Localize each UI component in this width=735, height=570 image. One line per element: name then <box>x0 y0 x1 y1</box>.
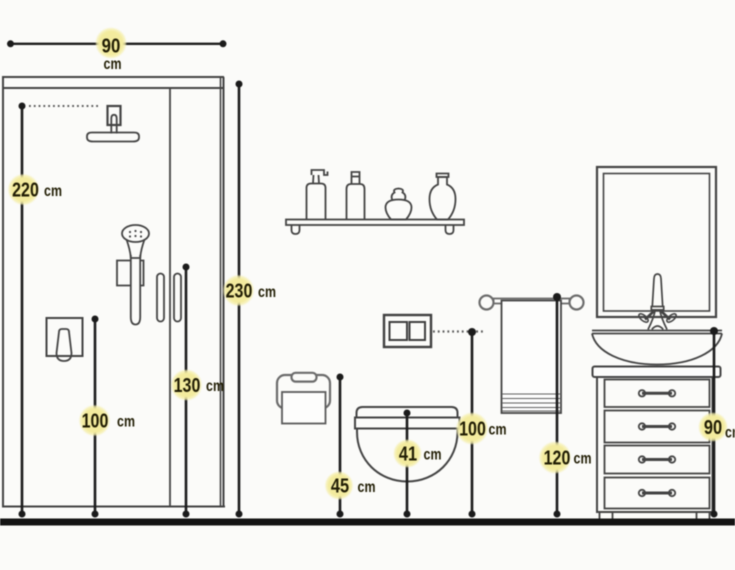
svg-text:45: 45 <box>331 474 349 497</box>
svg-text:120: 120 <box>544 446 571 469</box>
svg-text:cm: cm <box>358 478 376 496</box>
svg-text:230: 230 <box>226 279 253 302</box>
svg-text:cm: cm <box>258 283 276 301</box>
svg-text:cm: cm <box>117 412 135 430</box>
svg-text:90: 90 <box>704 415 722 438</box>
svg-text:cm: cm <box>574 449 592 467</box>
svg-text:220: 220 <box>12 178 39 201</box>
svg-text:cm: cm <box>725 423 735 441</box>
svg-text:cm: cm <box>44 182 62 200</box>
svg-text:cm: cm <box>424 445 442 463</box>
svg-text:130: 130 <box>174 373 201 396</box>
svg-text:41: 41 <box>399 442 417 465</box>
svg-text:cm: cm <box>206 377 224 395</box>
svg-text:cm: cm <box>104 55 122 73</box>
svg-text:cm: cm <box>489 420 507 438</box>
svg-text:100: 100 <box>82 409 109 432</box>
svg-text:100: 100 <box>459 417 486 440</box>
svg-text:90: 90 <box>102 34 121 57</box>
